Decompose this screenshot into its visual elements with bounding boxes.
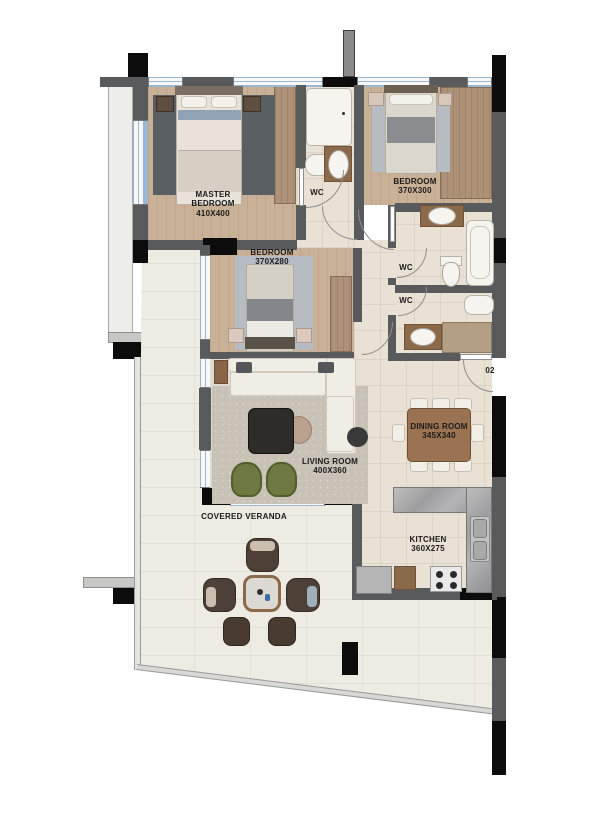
- bedroom2-dims: 370X300: [380, 186, 450, 195]
- master-closet: [274, 86, 296, 204]
- bathtub: [466, 220, 494, 286]
- veranda-stool-1: [223, 617, 250, 646]
- column-left-wall: [133, 240, 148, 263]
- bedroom2-door-leaf: [390, 206, 395, 242]
- bedroom3-bed: [246, 264, 294, 352]
- veranda-chair-right: [286, 578, 320, 612]
- armchair-green-1: [231, 462, 262, 497]
- window-living-west2: [200, 450, 210, 488]
- window-living-west1: [200, 358, 210, 388]
- wc-top-door-leaf: [299, 168, 304, 206]
- master-bed: [176, 87, 242, 205]
- window-master-west: [133, 120, 148, 205]
- shower-drain: [342, 112, 345, 115]
- wall-bathroom-west2: [388, 278, 396, 285]
- bedroom2-nightstand-right: [438, 93, 452, 106]
- floor-plan: MASTER BEDROOM 410X400 BEDROOM 370X300 B…: [0, 0, 600, 827]
- veranda-chair-right-cushion: [307, 586, 317, 607]
- bathtub-inner: [470, 226, 490, 279]
- dining-room-dims: 345X340: [409, 431, 469, 440]
- window-bedroom3-west: [200, 255, 210, 340]
- living-room-dims: 400X360: [294, 466, 366, 475]
- kitchen-cabinet: [356, 566, 392, 594]
- wall-entry-north: [388, 353, 460, 361]
- bedroom3-nightstand-right: [296, 328, 312, 343]
- bedroom2-label: BEDROOM 370X300: [380, 177, 450, 196]
- left-wall-seg2: [133, 205, 148, 240]
- right-wall-seg2: [492, 263, 506, 358]
- left-ledge-strip: [108, 85, 133, 342]
- right-wall-seg3: [492, 477, 506, 597]
- kitchen-board: [394, 566, 416, 590]
- column-top-mid: [323, 77, 357, 87]
- bedroom2-headboard: [384, 85, 438, 93]
- veranda-table: [243, 575, 281, 612]
- right-wall-col2: [492, 238, 506, 263]
- right-wall-seg4: [492, 658, 506, 721]
- right-wall-seg1: [492, 112, 506, 238]
- burner-4: [450, 582, 457, 589]
- master-bed-pillow-1: [181, 96, 207, 108]
- burner-1: [436, 571, 443, 578]
- burner-3: [436, 582, 443, 589]
- veranda-table-decor: [257, 589, 263, 595]
- veranda-chair-top-cushion: [250, 541, 275, 551]
- veranda-label: COVERED VERANDA: [188, 512, 300, 521]
- veranda-table-decor-2: [265, 594, 270, 601]
- wc2-sink: [410, 328, 436, 346]
- wc-top-label: WC: [303, 188, 331, 197]
- bath1-toilet: [442, 262, 460, 287]
- living-console: [214, 360, 228, 384]
- right-wall-col3: [492, 396, 506, 477]
- wc2-label: WC: [392, 296, 420, 305]
- wall-living-west2: [199, 388, 211, 450]
- shower-tray: [306, 88, 352, 146]
- veranda-chair-left: [203, 578, 236, 612]
- stove: [430, 566, 462, 592]
- living-room-label: LIVING ROOM 400X360: [294, 457, 366, 476]
- bedroom2-nightstand-left: [368, 92, 384, 106]
- armchair-green-2: [266, 462, 297, 497]
- kitchen-name: KITCHEN: [398, 535, 458, 544]
- bedroom3-name: BEDROOM: [237, 248, 307, 257]
- master-nightstand-left: [156, 96, 174, 112]
- kitchen-sink-unit: [470, 516, 490, 562]
- wall-master-wc: [296, 85, 306, 168]
- right-wall-col5: [492, 721, 506, 775]
- wc2-closet: [442, 322, 492, 353]
- right-wall-col1: [492, 55, 506, 112]
- wall-living-west1: [200, 340, 210, 358]
- master-bed-pillow-2: [211, 96, 237, 108]
- kitchen-sink-bowl-1: [473, 519, 487, 538]
- master-bed-blanket: [178, 150, 241, 192]
- unit-number-label: 02: [478, 366, 502, 375]
- dining-chair-left: [392, 424, 405, 442]
- master-nightstand-right: [243, 96, 261, 112]
- sofa-seats: [230, 372, 326, 396]
- wall-bedroom3-east1: [353, 248, 362, 322]
- bedroom2-blanket: [387, 117, 435, 143]
- bedroom3-dims: 370X280: [237, 257, 307, 266]
- wc1-label: WC: [392, 263, 420, 272]
- wall-bedroom3-west-top: [200, 245, 210, 255]
- bedroom3-label: BEDROOM 370X280: [237, 248, 307, 267]
- bedroom2-name: BEDROOM: [380, 177, 450, 186]
- wc2-shelf: [464, 295, 494, 315]
- dining-room-name: DINING ROOM: [409, 422, 469, 431]
- sofa-cushion-left: [236, 362, 252, 373]
- master-bedroom-label: MASTER BEDROOM 410X400: [173, 190, 253, 218]
- veranda-left-edge: [134, 357, 141, 670]
- bedroom3-blanket: [247, 299, 293, 321]
- bedroom2-pillow: [389, 94, 433, 105]
- column-veranda: [342, 642, 358, 675]
- bath1-sink: [428, 207, 456, 225]
- kitchen-sink-bowl-2: [473, 541, 487, 560]
- master-bed-headboard: [175, 86, 243, 95]
- right-wall-col4: [492, 597, 506, 658]
- master-bed-throw: [178, 110, 241, 120]
- dining-room-label: DINING ROOM 345X340: [409, 422, 469, 441]
- wall-master-east-low: [296, 205, 306, 240]
- bedroom3-wardrobe: [330, 276, 352, 352]
- top-pillar: [343, 30, 355, 77]
- sofa-cushion-right: [318, 362, 334, 373]
- coffee-table: [248, 408, 294, 454]
- left-wall-seg1: [133, 85, 148, 120]
- veranda-stool-2: [268, 617, 296, 646]
- veranda-chair-left-cushion: [206, 587, 216, 607]
- wall-master-south1: [148, 240, 203, 250]
- bedroom3-headboard: [245, 337, 295, 349]
- kitchen-label: KITCHEN 360X275: [398, 535, 458, 554]
- bedroom2-bed: [385, 86, 437, 174]
- dining-chair-right: [471, 424, 484, 442]
- master-bedroom-name: MASTER BEDROOM: [173, 190, 253, 209]
- burner-2: [450, 571, 457, 578]
- living-room-name: LIVING ROOM: [294, 457, 366, 466]
- master-bedroom-dims: 410X400: [173, 209, 253, 218]
- bedroom3-nightstand-left: [228, 328, 244, 343]
- veranda-chair-top: [246, 538, 279, 572]
- kitchen-dims: 360X275: [398, 544, 458, 553]
- living-stool: [347, 427, 368, 447]
- window-top-2: [233, 77, 323, 87]
- window-top-4: [467, 77, 492, 87]
